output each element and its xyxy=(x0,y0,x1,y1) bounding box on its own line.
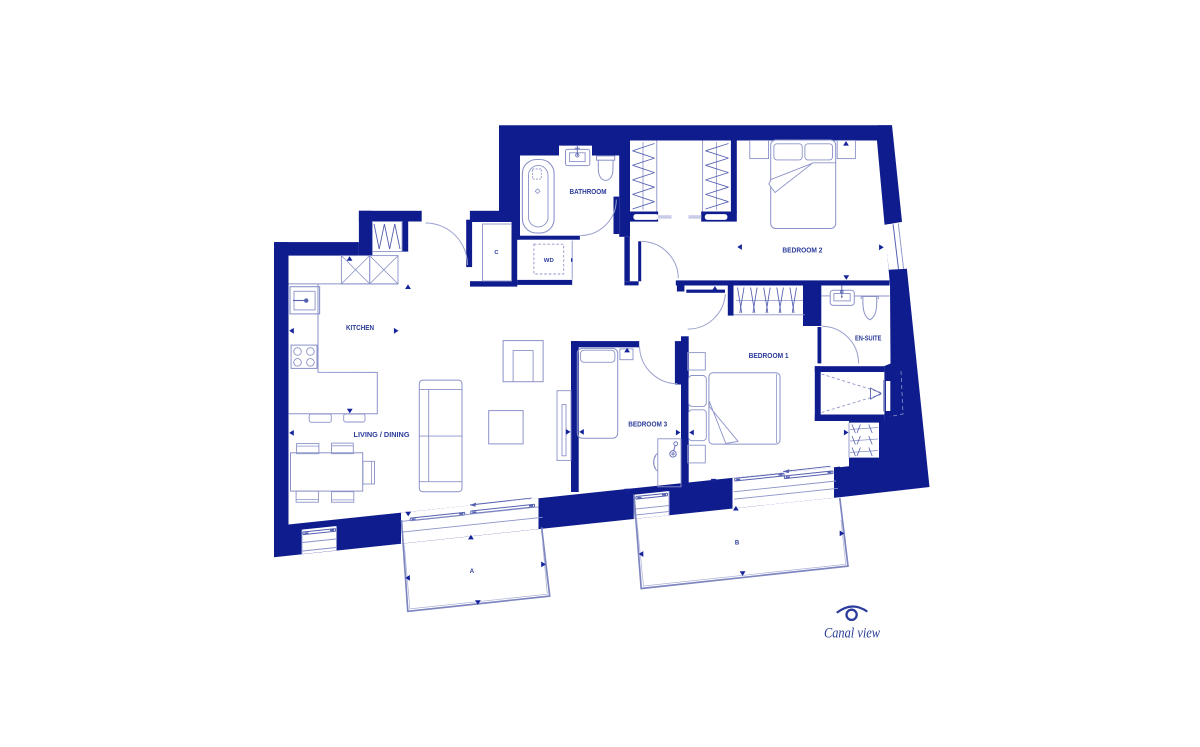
svg-text:KITCHEN: KITCHEN xyxy=(346,324,374,332)
svg-text:Canal view: Canal view xyxy=(824,626,880,642)
svg-text:BATHROOM: BATHROOM xyxy=(570,188,607,196)
svg-text:A: A xyxy=(470,569,475,575)
svg-text:LIVING / DINING: LIVING / DINING xyxy=(354,431,410,439)
svg-text:EN-SUITE: EN-SUITE xyxy=(855,334,882,342)
svg-text:BEDROOM 2: BEDROOM 2 xyxy=(782,247,822,255)
svg-text:B: B xyxy=(735,540,740,546)
svg-text:BEDROOM 3: BEDROOM 3 xyxy=(628,421,667,429)
svg-text:WD: WD xyxy=(544,258,554,264)
svg-text:BEDROOM 1: BEDROOM 1 xyxy=(749,352,789,360)
